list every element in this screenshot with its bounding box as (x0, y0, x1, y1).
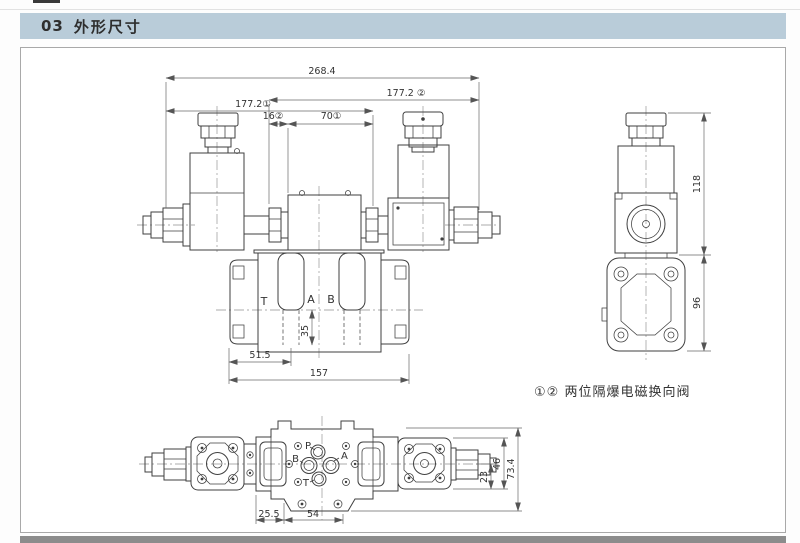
side-view: 118 96 (602, 106, 711, 360)
dim-16-label: 16② (263, 111, 284, 122)
dim-46-label: 46 (492, 458, 503, 470)
front-view: T A B 268.4 177.2 ② 177.2① 16② 70① 35 51… (137, 66, 500, 384)
dim-70-label: 70① (321, 111, 342, 122)
page-top-rule (0, 9, 800, 10)
dim-177-2-right-label: 177.2 ② (387, 88, 426, 99)
drawing-note: ①② 两位隔爆电磁换向阀 (534, 384, 690, 400)
dim-73-4-label: 73.4 (506, 458, 517, 479)
page-top-mark (33, 0, 60, 3)
dim-25-5-label: 25.5 (258, 509, 279, 520)
dim-35-label: 35 (300, 325, 311, 337)
top-port-b-label: B (292, 454, 299, 465)
section-header: 03 外形尺寸 (20, 13, 786, 39)
dim-118-label: 118 (692, 175, 703, 193)
dim-177-2-left-label: 177.2① (235, 99, 271, 110)
front-port-t-label: T (260, 295, 268, 308)
dim-54-label: 54 (307, 509, 319, 520)
drawing-frame: T A B 268.4 177.2 ② 177.2① 16② 70① 35 51… (20, 47, 786, 533)
dim-23-label: 23 (479, 471, 490, 483)
dim-overall-width-label: 268.4 (308, 66, 335, 77)
dimension-drawing: T A B 268.4 177.2 ② 177.2① 16② 70① 35 51… (21, 48, 785, 532)
front-port-a-label: A (307, 293, 315, 306)
dim-96-label: 96 (692, 297, 703, 309)
dim-51-5-label: 51.5 (249, 350, 270, 361)
section-number: 03 (41, 17, 64, 35)
front-port-b-label: B (327, 293, 335, 306)
section-title: 外形尺寸 (74, 16, 142, 37)
top-port-a-label: A (341, 451, 348, 462)
top-port-t-label: T (302, 478, 310, 489)
dim-157-label: 157 (310, 368, 328, 379)
top-view: P A B T 23 46 73.4 25.5 54 (139, 416, 522, 524)
footer-bar (20, 536, 786, 543)
top-port-p-label: P (305, 441, 311, 452)
